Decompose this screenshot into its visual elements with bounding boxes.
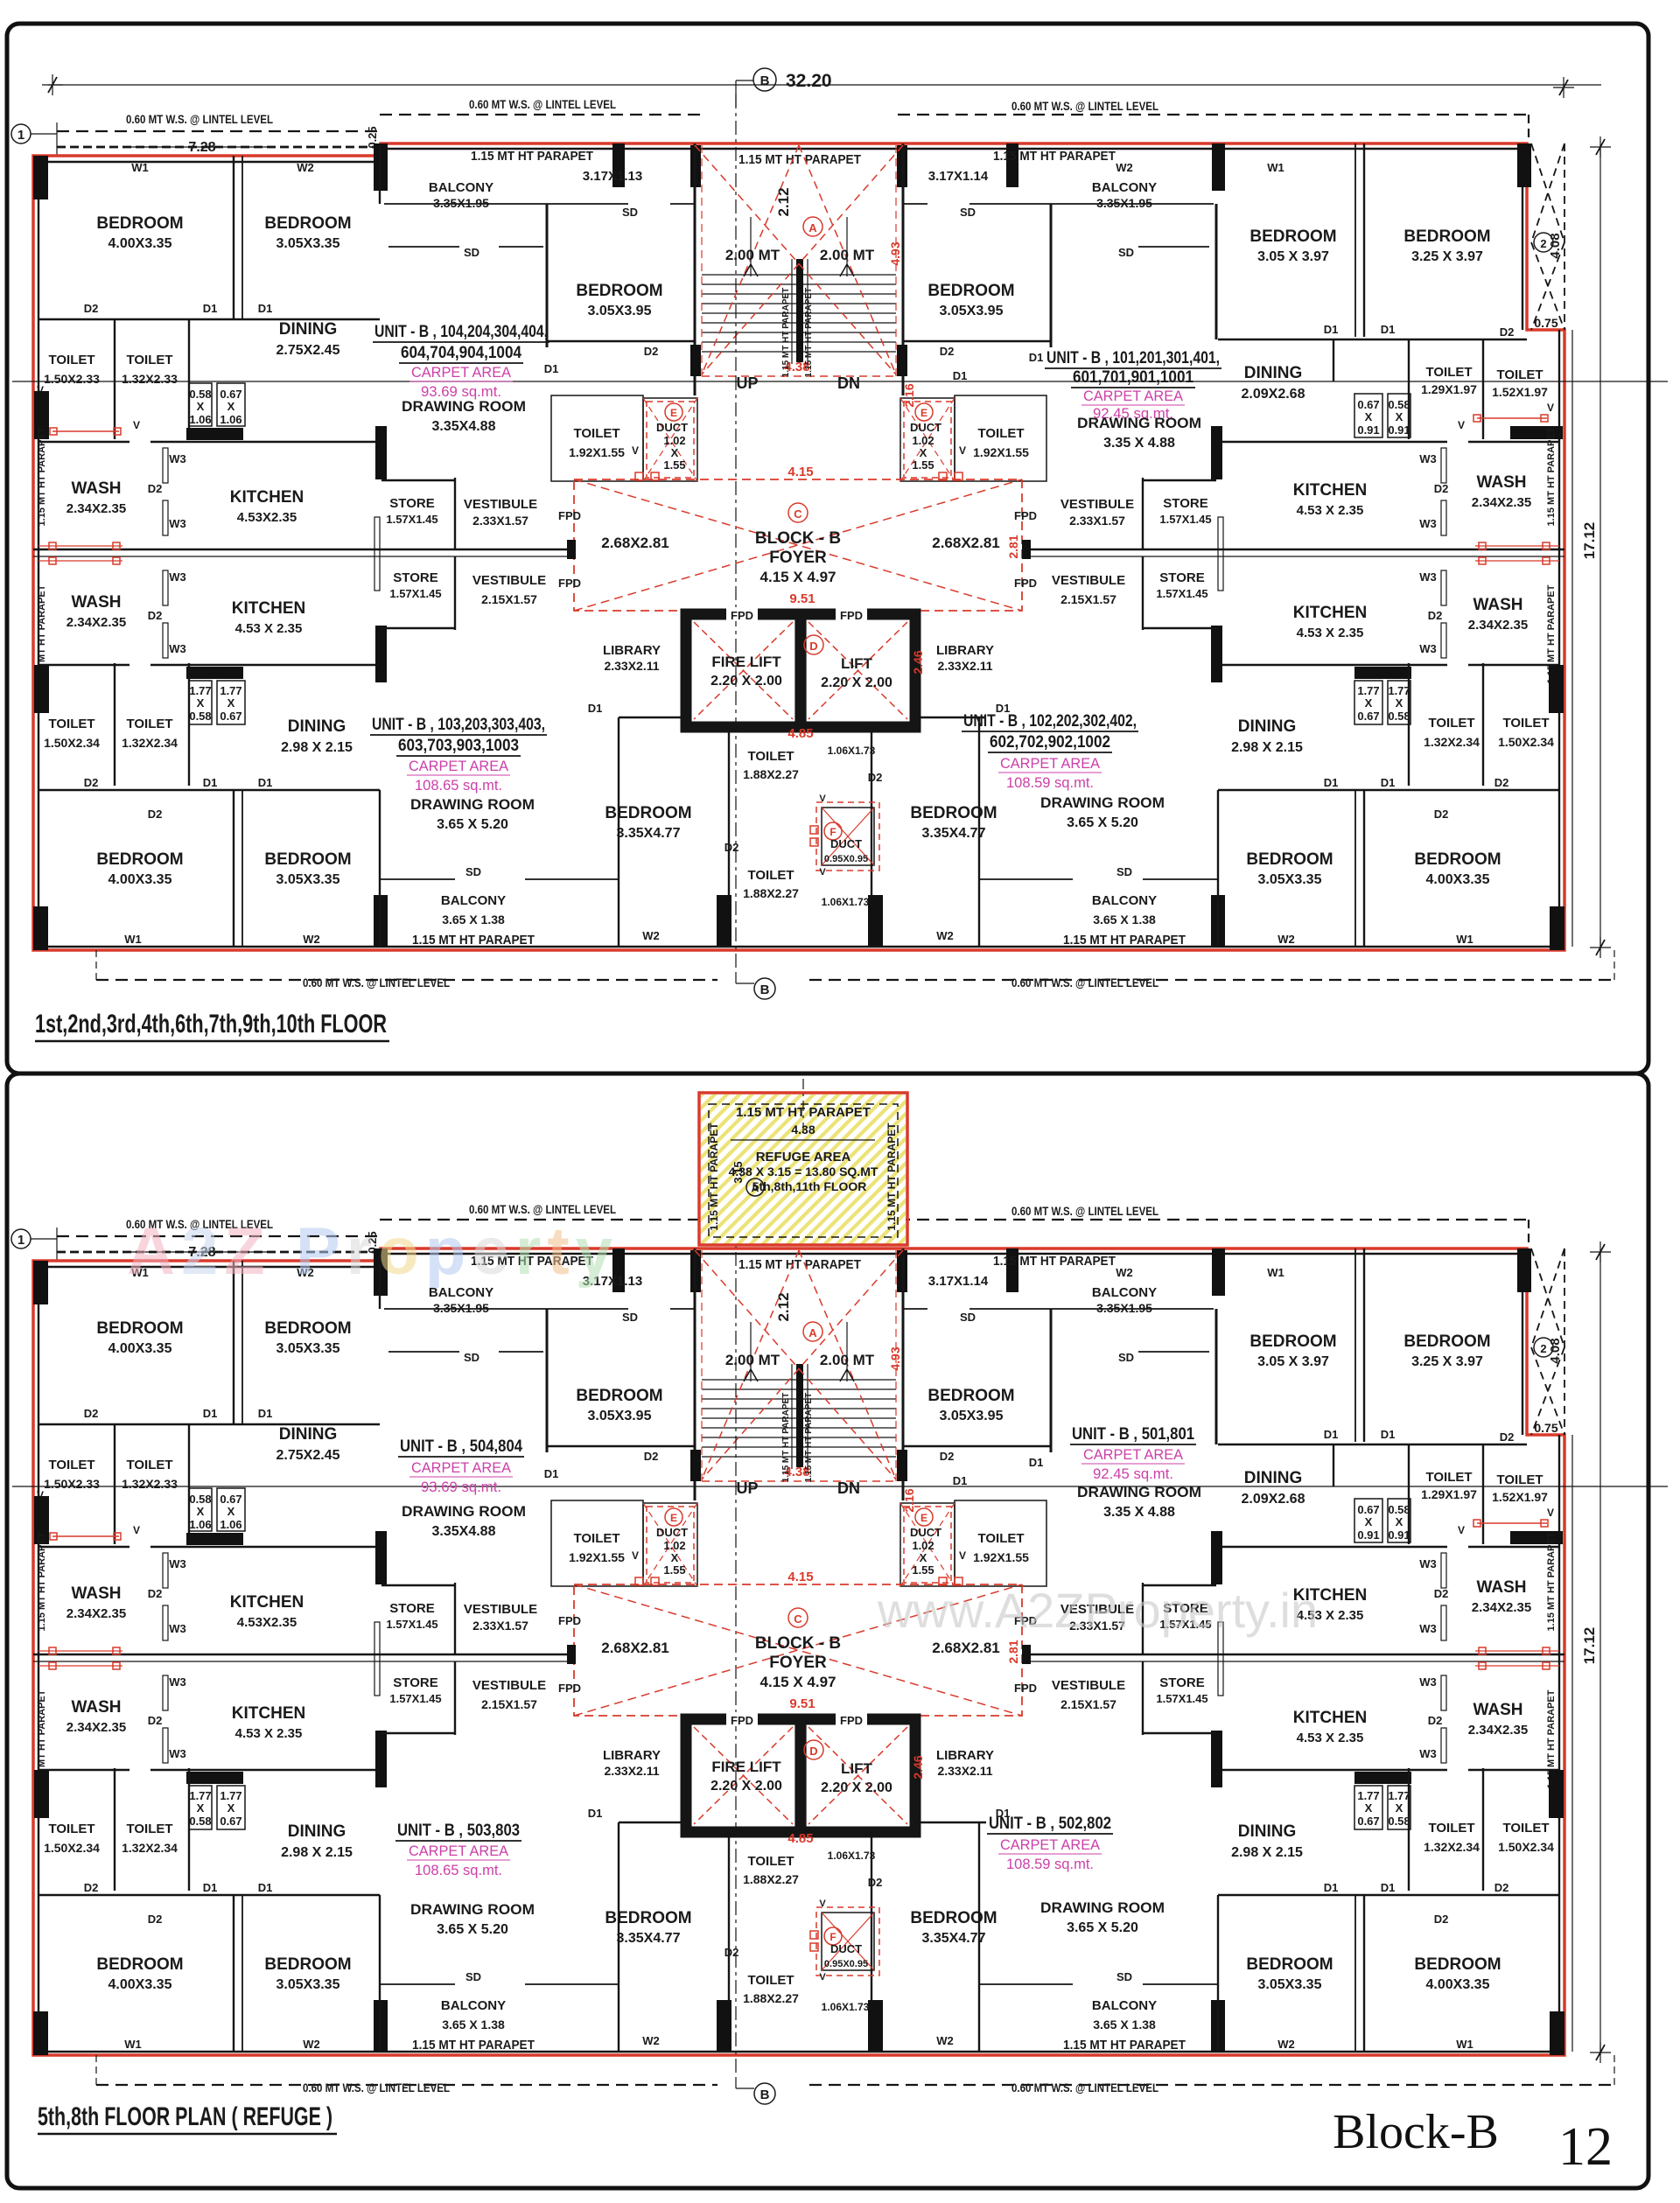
svg-text:3.05X3.35: 3.05X3.35 xyxy=(1258,1977,1322,1992)
svg-text:TOILET: TOILET xyxy=(747,1973,794,1988)
svg-text:1.50X2.34: 1.50X2.34 xyxy=(44,736,100,750)
svg-text:TOILET: TOILET xyxy=(1496,1472,1543,1487)
svg-text:BALCONY: BALCONY xyxy=(1092,180,1157,195)
svg-text:KITCHEN: KITCHEN xyxy=(1293,481,1367,500)
svg-text:DN: DN xyxy=(837,374,860,392)
svg-text:3.35X1.95: 3.35X1.95 xyxy=(433,196,489,210)
svg-text:1.57X1.45: 1.57X1.45 xyxy=(386,513,437,526)
svg-text:WASH: WASH xyxy=(72,479,122,498)
svg-text:1.92X1.55: 1.92X1.55 xyxy=(973,1550,1029,1564)
svg-text:2.81: 2.81 xyxy=(1006,535,1020,558)
svg-text:TOILET: TOILET xyxy=(1502,1821,1549,1836)
svg-text:2.98 X 2.15: 2.98 X 2.15 xyxy=(1231,740,1303,755)
svg-text:V: V xyxy=(959,444,966,457)
svg-text:STORE: STORE xyxy=(393,1675,437,1690)
svg-text:SD: SD xyxy=(1118,246,1134,259)
svg-text:0.60 MT W.S. @ LINTEL LEVEL: 0.60 MT W.S. @ LINTEL LEVEL xyxy=(1011,99,1158,113)
svg-text:X: X xyxy=(227,696,235,710)
svg-text:1.15 MT HT PARAPET: 1.15 MT HT PARAPET xyxy=(1546,427,1557,526)
svg-text:5th,8th FLOOR PLAN ( REFUGE ): 5th,8th FLOOR PLAN ( REFUGE ) xyxy=(38,2102,332,2131)
svg-text:9.51: 9.51 xyxy=(789,1696,815,1711)
svg-text:VESTIBULE: VESTIBULE xyxy=(464,1602,537,1617)
svg-text:TOILET: TOILET xyxy=(48,1458,94,1472)
svg-text:X: X xyxy=(1365,1515,1373,1528)
svg-text:1.02: 1.02 xyxy=(663,1539,685,1552)
svg-text:108.59 sq.mt.: 108.59 sq.mt. xyxy=(1006,774,1094,791)
svg-text:W3: W3 xyxy=(169,1622,186,1635)
svg-text:2: 2 xyxy=(1540,1342,1546,1355)
svg-text:UNIT - B , 503,803: UNIT - B , 503,803 xyxy=(397,1822,520,1840)
svg-text:SD: SD xyxy=(464,246,479,259)
svg-text:4.53 X 2.35: 4.53 X 2.35 xyxy=(1297,503,1364,518)
svg-text:3.35X4.88: 3.35X4.88 xyxy=(432,1524,496,1539)
svg-text:W3: W3 xyxy=(1419,1675,1437,1689)
svg-text:KITCHEN: KITCHEN xyxy=(1293,604,1367,622)
svg-text:32.20: 32.20 xyxy=(786,71,832,91)
svg-text:V: V xyxy=(133,1524,140,1536)
svg-text:2.75X2.45: 2.75X2.45 xyxy=(276,1448,340,1463)
svg-text:1.57X1.45: 1.57X1.45 xyxy=(1156,587,1207,600)
svg-text:1.02: 1.02 xyxy=(663,434,685,447)
svg-text:602,702,902,1002: 602,702,902,1002 xyxy=(990,733,1110,752)
svg-text:3.35X4.77: 3.35X4.77 xyxy=(922,826,986,841)
svg-text:1.32X2.34: 1.32X2.34 xyxy=(1424,735,1480,749)
svg-text:VESTIBULE: VESTIBULE xyxy=(1052,573,1125,588)
svg-text:DRAWING ROOM: DRAWING ROOM xyxy=(410,796,535,813)
svg-text:1.06: 1.06 xyxy=(189,1518,211,1531)
svg-text:SD: SD xyxy=(960,206,976,219)
svg-text:2.20 X 2.00: 2.20 X 2.00 xyxy=(710,1779,782,1794)
svg-text:E: E xyxy=(920,1512,927,1524)
svg-text:0.67: 0.67 xyxy=(1357,1503,1379,1516)
svg-text:E: E xyxy=(670,1512,677,1524)
svg-text:2.33X2.11: 2.33X2.11 xyxy=(604,1764,659,1778)
svg-text:1.15 MT HT PARAPET: 1.15 MT HT PARAPET xyxy=(412,2038,535,2053)
svg-text:0.67: 0.67 xyxy=(220,1815,241,1828)
svg-text:DUCT: DUCT xyxy=(656,1526,688,1539)
svg-text:1.55: 1.55 xyxy=(663,1563,685,1577)
svg-text:0.58: 0.58 xyxy=(1388,1503,1410,1516)
svg-text:603,703,903,1003: 603,703,903,1003 xyxy=(398,737,519,755)
svg-text:V: V xyxy=(819,867,826,878)
svg-text:TOILET: TOILET xyxy=(747,868,794,883)
svg-text:D1: D1 xyxy=(1029,1456,1044,1469)
svg-text:17.12: 17.12 xyxy=(1581,1627,1598,1665)
svg-text:3.35X4.77: 3.35X4.77 xyxy=(617,826,681,841)
svg-text:2.00 MT: 2.00 MT xyxy=(725,1352,780,1368)
svg-text:F: F xyxy=(829,1931,836,1943)
svg-text:1.88X2.27: 1.88X2.27 xyxy=(743,1872,799,1886)
svg-text:CARPET AREA: CARPET AREA xyxy=(409,758,509,774)
svg-text:2.16: 2.16 xyxy=(902,383,916,407)
svg-text:D2: D2 xyxy=(940,1450,955,1463)
svg-text:W1: W1 xyxy=(1456,933,1473,946)
svg-text:1.50X2.33: 1.50X2.33 xyxy=(44,1477,100,1491)
svg-text:FPD: FPD xyxy=(1014,509,1037,522)
svg-text:3.35X4.77: 3.35X4.77 xyxy=(922,1931,986,1946)
svg-text:1.50X2.33: 1.50X2.33 xyxy=(44,372,100,386)
svg-text:0.67: 0.67 xyxy=(1357,1815,1379,1828)
svg-text:0.60 MT W.S. @ LINTEL LEVEL: 0.60 MT W.S. @ LINTEL LEVEL xyxy=(1011,2081,1158,2095)
svg-text:BEDROOM: BEDROOM xyxy=(1249,1332,1336,1351)
svg-text:12: 12 xyxy=(1558,2117,1613,2177)
svg-text:2.15X1.57: 2.15X1.57 xyxy=(481,1697,537,1711)
svg-text:1.77: 1.77 xyxy=(189,1789,211,1802)
svg-text:BEDROOM: BEDROOM xyxy=(576,282,662,300)
svg-text:9.51: 9.51 xyxy=(789,591,815,606)
svg-text:SD: SD xyxy=(622,206,638,219)
svg-text:3.17X1.14: 3.17X1.14 xyxy=(928,1274,989,1289)
svg-text:1.15 MT HT PARAPET: 1.15 MT HT PARAPET xyxy=(993,149,1116,164)
svg-text:1: 1 xyxy=(17,1233,24,1248)
svg-text:1.15 MT HT PARAPET: 1.15 MT HT PARAPET xyxy=(804,288,814,378)
svg-text:DINING: DINING xyxy=(1238,717,1297,736)
svg-text:FPD: FPD xyxy=(731,1714,753,1727)
svg-text:W3: W3 xyxy=(169,1747,186,1760)
svg-text:3.05X3.35: 3.05X3.35 xyxy=(1258,872,1322,887)
svg-text:D2: D2 xyxy=(148,1913,163,1926)
svg-text:3.35X1.95: 3.35X1.95 xyxy=(1096,1301,1152,1315)
svg-text:3.35X4.77: 3.35X4.77 xyxy=(617,1931,681,1946)
svg-text:D2: D2 xyxy=(644,345,659,358)
svg-text:C: C xyxy=(794,1612,802,1626)
svg-text:1.77: 1.77 xyxy=(1357,684,1379,697)
svg-text:D1: D1 xyxy=(544,1467,559,1480)
svg-text:V: V xyxy=(819,1899,826,1909)
svg-text:D2: D2 xyxy=(148,482,163,495)
svg-text:4.38 X 3.15 = 13.80 SQ.MT: 4.38 X 3.15 = 13.80 SQ.MT xyxy=(729,1164,878,1178)
svg-text:2.20 X 2.00: 2.20 X 2.00 xyxy=(821,1780,892,1795)
svg-text:D1: D1 xyxy=(203,1881,218,1894)
svg-text:0.58: 0.58 xyxy=(189,710,211,723)
svg-text:W2: W2 xyxy=(642,2034,660,2047)
svg-text:D1: D1 xyxy=(1381,776,1396,789)
svg-text:BEDROOM: BEDROOM xyxy=(96,1955,183,1974)
svg-text:DRAWING ROOM: DRAWING ROOM xyxy=(1077,415,1201,431)
svg-text:SD: SD xyxy=(464,1351,479,1364)
svg-text:TOILET: TOILET xyxy=(747,1854,794,1869)
svg-text:3.25 X 3.97: 3.25 X 3.97 xyxy=(1411,1354,1483,1369)
svg-text:D1: D1 xyxy=(258,302,273,315)
svg-text:WASH: WASH xyxy=(1473,596,1523,614)
svg-text:D2: D2 xyxy=(1428,1714,1443,1727)
svg-text:UNIT - B , 504,804: UNIT - B , 504,804 xyxy=(400,1437,522,1456)
svg-text:X: X xyxy=(920,1551,927,1564)
svg-text:2.20 X 2.00: 2.20 X 2.00 xyxy=(821,675,892,690)
svg-text:V: V xyxy=(819,794,826,804)
svg-text:108.59 sq.mt.: 108.59 sq.mt. xyxy=(1006,1856,1094,1872)
svg-text:4.38: 4.38 xyxy=(791,1122,815,1136)
svg-text:1.57X1.45: 1.57X1.45 xyxy=(1159,513,1211,526)
svg-text:2.68X2.81: 2.68X2.81 xyxy=(932,535,1000,551)
svg-text:D2: D2 xyxy=(84,776,99,789)
svg-text:W3: W3 xyxy=(169,1675,186,1689)
svg-text:FPD: FPD xyxy=(1014,1682,1037,1695)
svg-text:V: V xyxy=(632,1549,639,1562)
svg-text:2.33X2.11: 2.33X2.11 xyxy=(937,1764,992,1778)
svg-text:2.46: 2.46 xyxy=(911,650,925,674)
svg-text:W2: W2 xyxy=(936,929,954,942)
svg-text:1.52X1.97: 1.52X1.97 xyxy=(1492,1490,1548,1504)
svg-text:D2: D2 xyxy=(148,609,163,622)
svg-text:W2: W2 xyxy=(936,2034,954,2047)
svg-text:3.05X3.35: 3.05X3.35 xyxy=(276,872,340,887)
svg-text:X: X xyxy=(1365,410,1373,423)
svg-text:CARPET AREA: CARPET AREA xyxy=(1083,1446,1184,1463)
svg-text:UP: UP xyxy=(736,374,758,392)
svg-text:3.65 X 1.38: 3.65 X 1.38 xyxy=(442,913,505,927)
svg-text:0.60 MT W.S. @ LINTEL LEVEL: 0.60 MT W.S. @ LINTEL LEVEL xyxy=(469,97,616,111)
svg-text:1.15 MT HT PARAPET: 1.15 MT HT PARAPET xyxy=(738,152,861,167)
svg-text:1.50X2.34: 1.50X2.34 xyxy=(44,1841,100,1855)
svg-text:D2: D2 xyxy=(868,1876,883,1889)
svg-text:DINING: DINING xyxy=(1238,1822,1297,1841)
svg-text:WASH: WASH xyxy=(1473,1701,1523,1719)
svg-text:CARPET AREA: CARPET AREA xyxy=(1000,1836,1101,1853)
svg-text:FPD: FPD xyxy=(731,609,753,622)
svg-text:1.77: 1.77 xyxy=(1388,1789,1410,1802)
svg-text:BLOCK - B: BLOCK - B xyxy=(755,529,841,548)
svg-text:W3: W3 xyxy=(1419,1747,1437,1760)
svg-text:0.60 MT W.S. @ LINTEL LEVEL: 0.60 MT W.S. @ LINTEL LEVEL xyxy=(303,976,450,990)
svg-text:0.91: 0.91 xyxy=(1357,1528,1379,1542)
svg-text:0.91: 0.91 xyxy=(1388,423,1410,437)
svg-text:3.35X1.95: 3.35X1.95 xyxy=(1096,196,1152,210)
svg-text:WASH: WASH xyxy=(1477,473,1527,492)
svg-text:W3: W3 xyxy=(1419,642,1437,655)
svg-text:D1: D1 xyxy=(588,702,603,715)
svg-text:4.00X3.35: 4.00X3.35 xyxy=(108,1977,172,1992)
svg-text:3.35X4.88: 3.35X4.88 xyxy=(432,419,496,434)
svg-text:BEDROOM: BEDROOM xyxy=(927,282,1014,300)
svg-text:STORE: STORE xyxy=(1159,570,1204,585)
svg-text:TOILET: TOILET xyxy=(1496,367,1543,382)
svg-text:DINING: DINING xyxy=(1244,1469,1303,1487)
svg-text:2.20 X 2.00: 2.20 X 2.00 xyxy=(710,674,782,689)
svg-text:SD: SD xyxy=(622,1311,638,1324)
svg-text:601,701,901,1001: 601,701,901,1001 xyxy=(1073,368,1193,387)
svg-text:LIFT: LIFT xyxy=(841,655,872,672)
svg-text:1.15 MT HT PARAPET: 1.15 MT HT PARAPET xyxy=(37,1532,47,1631)
svg-text:DRAWING ROOM: DRAWING ROOM xyxy=(402,1503,526,1520)
svg-text:2.34X2.35: 2.34X2.35 xyxy=(1468,618,1528,633)
svg-text:UNIT - B , 502,802: UNIT - B , 502,802 xyxy=(989,1815,1111,1833)
svg-text:D1: D1 xyxy=(1324,323,1339,336)
svg-text:DINING: DINING xyxy=(279,1425,338,1444)
svg-text:1.15 MT HT PARAPET: 1.15 MT HT PARAPET xyxy=(736,1105,871,1120)
svg-text:W3: W3 xyxy=(169,452,186,465)
svg-text:93.69 sq.mt.: 93.69 sq.mt. xyxy=(421,1479,501,1495)
svg-text:1.06X1.73: 1.06X1.73 xyxy=(822,896,870,908)
svg-text:1.88X2.27: 1.88X2.27 xyxy=(743,767,799,781)
svg-text:4.85: 4.85 xyxy=(787,726,813,741)
svg-text:2.68X2.81: 2.68X2.81 xyxy=(932,1640,1000,1656)
svg-text:UNIT - B , 102,202,302,402,: UNIT - B , 102,202,302,402, xyxy=(963,712,1137,731)
svg-text:STORE: STORE xyxy=(393,570,437,585)
svg-text:BEDROOM: BEDROOM xyxy=(264,1319,351,1338)
svg-text:1.57X1.45: 1.57X1.45 xyxy=(1156,1692,1207,1705)
svg-text:2.00 MT: 2.00 MT xyxy=(725,247,780,263)
svg-text:1.29X1.97: 1.29X1.97 xyxy=(1421,1487,1477,1501)
svg-text:3.35 X 4.88: 3.35 X 4.88 xyxy=(1103,1505,1175,1520)
svg-text:2.15X1.57: 2.15X1.57 xyxy=(1060,1697,1116,1711)
svg-text:1.02: 1.02 xyxy=(912,434,934,447)
svg-text:1: 1 xyxy=(17,128,24,143)
svg-text:KITCHEN: KITCHEN xyxy=(232,599,305,618)
svg-text:FOYER: FOYER xyxy=(769,549,827,567)
svg-text:BEDROOM: BEDROOM xyxy=(96,1319,183,1338)
svg-text:A: A xyxy=(752,1182,759,1194)
svg-text:1.15 MT HT PARAPET: 1.15 MT HT PARAPET xyxy=(1546,1532,1557,1631)
svg-text:4.00X3.35: 4.00X3.35 xyxy=(1426,1977,1490,1992)
svg-text:1.77: 1.77 xyxy=(1388,684,1410,697)
svg-text:D2: D2 xyxy=(84,1407,99,1420)
svg-text:BEDROOM: BEDROOM xyxy=(1403,1332,1490,1351)
svg-text:4.08: 4.08 xyxy=(1548,1338,1563,1363)
svg-text:UP: UP xyxy=(736,1479,758,1497)
svg-text:VESTIBULE: VESTIBULE xyxy=(1060,497,1134,512)
svg-text:4.53 X 2.35: 4.53 X 2.35 xyxy=(235,621,303,636)
svg-text:1.92X1.55: 1.92X1.55 xyxy=(569,1550,625,1564)
svg-text:2.33X1.57: 2.33X1.57 xyxy=(1069,514,1125,528)
svg-text:0.75: 0.75 xyxy=(1534,316,1557,330)
svg-text:4.15: 4.15 xyxy=(787,465,813,479)
svg-text:4.53X2.35: 4.53X2.35 xyxy=(237,1615,297,1630)
svg-text:2.81: 2.81 xyxy=(1006,1640,1020,1663)
svg-text:2.16: 2.16 xyxy=(902,1488,916,1512)
svg-text:W2: W2 xyxy=(303,933,320,946)
svg-text:W2: W2 xyxy=(297,161,314,174)
svg-text:1.50X2.34: 1.50X2.34 xyxy=(1498,735,1554,749)
svg-text:0.60 MT W.S. @ LINTEL LEVEL: 0.60 MT W.S. @ LINTEL LEVEL xyxy=(303,2081,450,2095)
svg-text:C: C xyxy=(794,507,802,521)
svg-text:D1: D1 xyxy=(203,302,218,315)
svg-text:V: V xyxy=(959,1549,966,1562)
svg-text:3.65 X 1.38: 3.65 X 1.38 xyxy=(442,2018,505,2032)
svg-text:1.77: 1.77 xyxy=(220,684,241,697)
svg-text:DRAWING ROOM: DRAWING ROOM xyxy=(1040,1899,1165,1916)
svg-text:X: X xyxy=(1365,1801,1373,1815)
svg-text:A: A xyxy=(808,1326,817,1339)
svg-text:W2: W2 xyxy=(642,929,660,942)
svg-text:1.15 MT HT PARAPET: 1.15 MT HT PARAPET xyxy=(781,288,791,378)
svg-text:D2: D2 xyxy=(868,771,883,784)
svg-text:2.09X2.68: 2.09X2.68 xyxy=(1242,1492,1305,1507)
svg-text:BEDROOM: BEDROOM xyxy=(264,1955,351,1974)
svg-text:TOILET: TOILET xyxy=(573,426,619,441)
svg-text:BLOCK - B: BLOCK - B xyxy=(755,1634,841,1653)
svg-text:D1: D1 xyxy=(1324,776,1339,789)
svg-text:W3: W3 xyxy=(169,517,186,530)
svg-text:KITCHEN: KITCHEN xyxy=(232,1704,305,1723)
svg-text:X: X xyxy=(1365,696,1373,710)
svg-text:DINING: DINING xyxy=(288,1822,346,1841)
svg-text:0.58: 0.58 xyxy=(1388,710,1410,723)
svg-text:0.91: 0.91 xyxy=(1388,1528,1410,1542)
svg-text:D2: D2 xyxy=(1500,325,1515,339)
svg-text:CARPET AREA: CARPET AREA xyxy=(1000,755,1101,772)
svg-text:3.05 X 3.97: 3.05 X 3.97 xyxy=(1257,249,1329,264)
svg-text:1.06X1.73: 1.06X1.73 xyxy=(822,2001,870,2013)
svg-text:2.34X2.35: 2.34X2.35 xyxy=(1472,495,1531,510)
svg-text:B: B xyxy=(760,983,770,997)
svg-text:1.57X1.45: 1.57X1.45 xyxy=(386,1618,437,1631)
svg-text:0.60 MT W.S. @ LINTEL LEVEL: 0.60 MT W.S. @ LINTEL LEVEL xyxy=(1011,1204,1158,1218)
svg-text:0.67: 0.67 xyxy=(220,710,241,723)
svg-text:D1: D1 xyxy=(203,776,218,789)
svg-text:X: X xyxy=(1396,696,1403,710)
svg-text:DUCT: DUCT xyxy=(656,421,688,434)
svg-text:3.05X3.35: 3.05X3.35 xyxy=(276,236,340,251)
svg-text:TOILET: TOILET xyxy=(977,1531,1024,1546)
svg-text:3.25 X 3.97: 3.25 X 3.97 xyxy=(1411,249,1483,264)
svg-text:FPD: FPD xyxy=(1014,577,1037,590)
svg-text:1.52X1.97: 1.52X1.97 xyxy=(1492,385,1548,399)
svg-text:WASH: WASH xyxy=(72,1698,122,1717)
svg-text:1.50X2.34: 1.50X2.34 xyxy=(1498,1840,1554,1854)
svg-text:TOILET: TOILET xyxy=(48,353,94,367)
svg-text:DINING: DINING xyxy=(279,320,338,339)
svg-text:W3: W3 xyxy=(169,570,186,584)
svg-text:SD: SD xyxy=(465,865,481,878)
svg-text:0.60 MT W.S. @ LINTEL LEVEL: 0.60 MT W.S. @ LINTEL LEVEL xyxy=(1011,976,1158,990)
svg-text:BEDROOM: BEDROOM xyxy=(1246,1955,1333,1974)
svg-text:1.15 MT HT PARAPET: 1.15 MT HT PARAPET xyxy=(804,1393,814,1483)
svg-text:DN: DN xyxy=(837,1479,860,1497)
svg-text:D1: D1 xyxy=(1381,1428,1396,1441)
svg-text:D1: D1 xyxy=(1381,1881,1396,1894)
svg-text:3.17X1.14: 3.17X1.14 xyxy=(928,169,989,184)
svg-text:2.68X2.81: 2.68X2.81 xyxy=(601,535,669,551)
svg-text:3.17X1.13: 3.17X1.13 xyxy=(583,169,642,184)
svg-text:1.55: 1.55 xyxy=(912,458,934,472)
svg-text:TOILET: TOILET xyxy=(573,1531,619,1546)
svg-text:W3: W3 xyxy=(1419,452,1437,465)
svg-text:2.34X2.35: 2.34X2.35 xyxy=(66,501,126,516)
svg-text:UNIT - B , 101,201,301,401,: UNIT - B , 101,201,301,401, xyxy=(1046,349,1220,367)
svg-text:1.77: 1.77 xyxy=(1357,1789,1379,1802)
svg-text:3.35X1.95: 3.35X1.95 xyxy=(433,1301,489,1315)
svg-text:W3: W3 xyxy=(1419,1622,1437,1635)
svg-text:X: X xyxy=(227,1801,235,1815)
svg-text:17.12: 17.12 xyxy=(1581,522,1598,560)
svg-text:B: B xyxy=(760,73,770,88)
svg-text:2: 2 xyxy=(1540,237,1546,250)
svg-text:D1: D1 xyxy=(1324,1428,1339,1441)
svg-text:STORE: STORE xyxy=(1159,1675,1204,1690)
svg-text:DUCT: DUCT xyxy=(910,421,941,434)
svg-text:D: D xyxy=(809,640,817,653)
svg-text:TOILET: TOILET xyxy=(977,426,1024,441)
svg-text:KITCHEN: KITCHEN xyxy=(230,1593,304,1612)
svg-text:BALCONY: BALCONY xyxy=(1092,893,1157,908)
svg-text:TOILET: TOILET xyxy=(126,353,172,367)
svg-text:FPD: FPD xyxy=(840,1714,863,1727)
svg-text:D2: D2 xyxy=(644,1450,659,1463)
svg-text:D2: D2 xyxy=(1500,1430,1515,1444)
svg-text:A: A xyxy=(808,221,817,234)
svg-text:W1: W1 xyxy=(1456,2038,1473,2051)
svg-text:3.05X3.95: 3.05X3.95 xyxy=(588,304,652,318)
svg-text:V: V xyxy=(1458,1524,1465,1536)
svg-text:LIBRARY: LIBRARY xyxy=(603,643,661,658)
svg-text:DRAWING ROOM: DRAWING ROOM xyxy=(1077,1484,1201,1500)
svg-text:LIBRARY: LIBRARY xyxy=(936,1748,994,1763)
svg-text:2.34X2.35: 2.34X2.35 xyxy=(66,615,126,630)
svg-text:4.15: 4.15 xyxy=(787,1570,813,1584)
svg-text:X: X xyxy=(197,1505,205,1518)
svg-text:W3: W3 xyxy=(1419,570,1437,584)
